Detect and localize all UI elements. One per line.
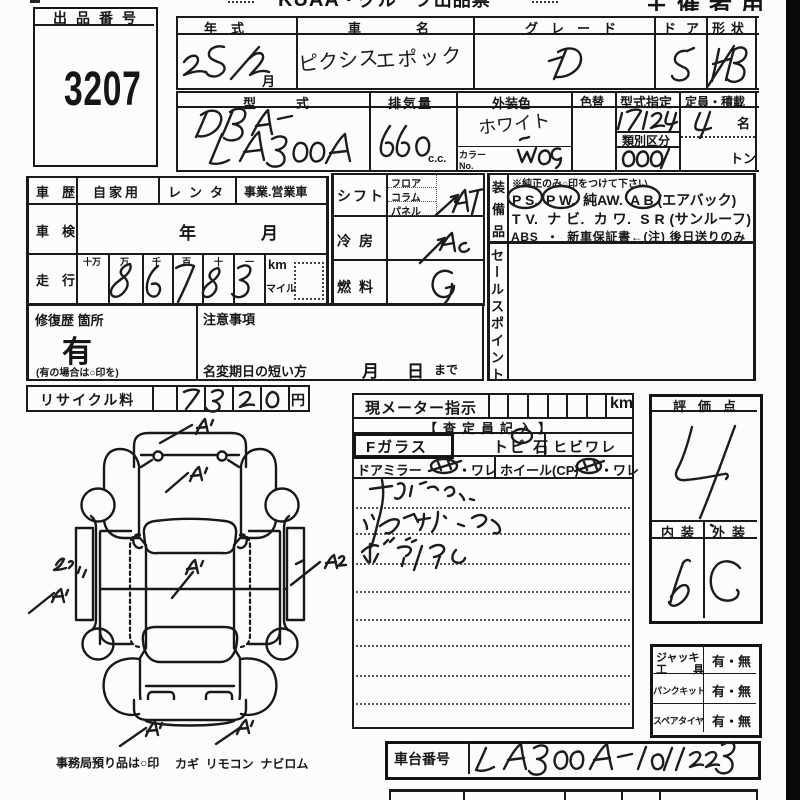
svg-text:ホワイト: ホワイト <box>477 111 551 138</box>
svg-text:ピクシス: ピクシス <box>297 46 379 76</box>
svg-text:エポック: エポック <box>375 44 464 73</box>
